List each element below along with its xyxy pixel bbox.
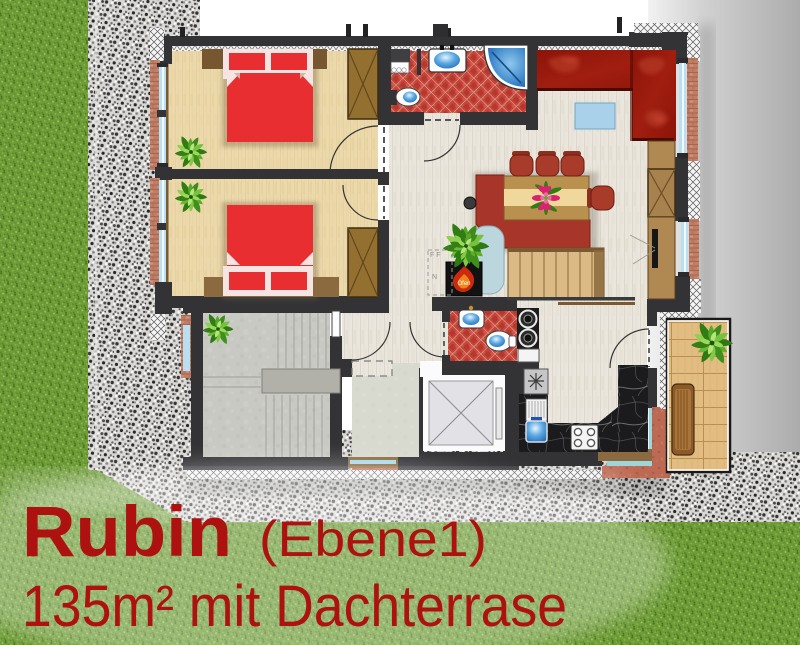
svg-text:(Ebene1): (Ebene1) xyxy=(259,511,487,567)
svg-text:Ofen: Ofen xyxy=(457,281,470,287)
svg-text:Rubin: Rubin xyxy=(22,493,232,572)
svg-text:135m² mit Dachterrase: 135m² mit Dachterrase xyxy=(22,574,567,639)
svg-text:F F: F F xyxy=(430,252,441,259)
svg-text:N: N xyxy=(432,274,437,281)
